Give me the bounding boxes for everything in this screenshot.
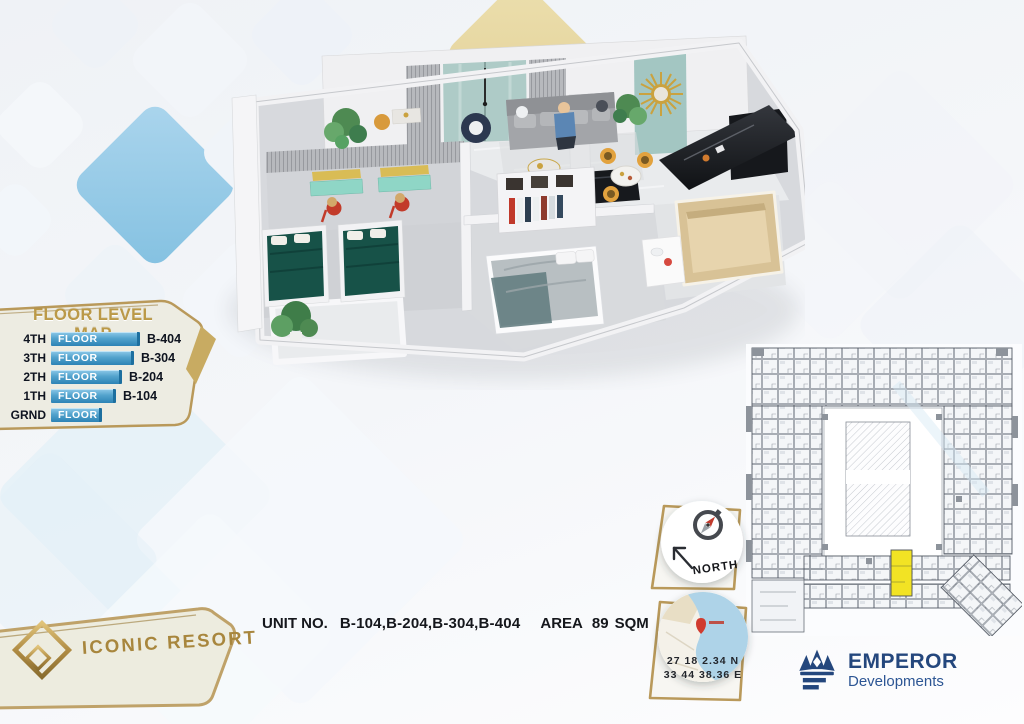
- floor-bar: FLOOR: [51, 408, 102, 422]
- master-bed: [486, 246, 604, 334]
- armchair: [461, 113, 491, 143]
- floor-row: 1TH FLOOR B-104: [4, 386, 204, 405]
- floor-unit-label: B-204: [129, 370, 163, 384]
- longitude-text: 33 44 38.36 E: [664, 669, 742, 681]
- floor-level-label: 2TH: [4, 370, 46, 384]
- floor-bar: FLOOR: [51, 351, 134, 365]
- floor-bar-label: FLOOR: [51, 333, 98, 345]
- decor-diamond: [46, 0, 145, 74]
- highlighted-unit: [891, 550, 912, 596]
- floor-row: 3TH FLOOR B-304: [4, 349, 204, 368]
- floor-bar-label: FLOOR: [51, 390, 98, 402]
- floor-unit-label: B-304: [141, 351, 175, 365]
- developer-logo: EMPEROR Developments: [794, 646, 958, 694]
- floor-bar-label: FLOOR: [51, 371, 98, 383]
- floor-unit-label: B-404: [147, 332, 181, 346]
- unit-info-bar: UNIT NO.B-104,B-204,B-304,B-404AREA89SQM: [262, 615, 642, 632]
- badges: NORTH 27 18 2.34 N 33 44 38.36 E: [628, 492, 762, 712]
- bathroom-enclosure: [676, 192, 782, 285]
- location-badge: 27 18 2.34 N 33 44 38.36 E: [658, 592, 748, 682]
- site-plan: [746, 344, 1022, 636]
- building-wing-top: [752, 348, 1012, 406]
- floor-level-label: 1TH: [4, 389, 46, 403]
- floor-level-label: 4TH: [4, 332, 46, 346]
- floor-level-label: 3TH: [4, 351, 46, 365]
- developer-subtitle: Developments: [848, 674, 958, 689]
- floor-level-label: GRND: [4, 408, 46, 422]
- unit-no-label: UNIT NO.: [262, 615, 328, 632]
- compass-badge: NORTH: [661, 501, 743, 583]
- floor-bar: FLOOR: [51, 332, 140, 346]
- area-label: AREA: [540, 615, 583, 632]
- building-wing-left: [752, 406, 822, 578]
- floor-bar: FLOOR: [51, 389, 116, 403]
- unit-numbers: B-104,B-204,B-304,B-404: [340, 615, 521, 632]
- latitude-text: 27 18 2.34 N: [667, 655, 739, 667]
- floor-bar: FLOOR: [51, 370, 122, 384]
- developer-name: EMPEROR: [848, 651, 958, 672]
- floor-bar-label: FLOOR: [51, 352, 98, 364]
- floor-row: 2TH FLOOR B-204: [4, 368, 204, 387]
- floor-row: 4TH FLOOR B-404: [4, 330, 204, 349]
- floorplan-3d-render: [213, 10, 805, 390]
- crown-icon: [794, 646, 840, 694]
- brochure-canvas: FLOOR LEVEL MAP 4TH FLOOR B-404 3TH FLOO…: [0, 0, 1024, 724]
- compass-icon: [695, 509, 722, 538]
- wardrobe: [497, 167, 596, 233]
- area-value: 89: [592, 615, 609, 632]
- resort-logo-plate: [0, 598, 260, 724]
- bathroom-sink: [642, 236, 685, 287]
- decor-diamond: [0, 76, 89, 175]
- decor-diamond: [0, 178, 57, 263]
- floor-unit-label: B-104: [123, 389, 157, 403]
- floor-level-map-panel: FLOOR LEVEL MAP 4TH FLOOR B-404 3TH FLOO…: [0, 294, 225, 439]
- floor-row: GRND FLOOR: [4, 405, 204, 424]
- floor-bar-label: FLOOR: [51, 409, 98, 421]
